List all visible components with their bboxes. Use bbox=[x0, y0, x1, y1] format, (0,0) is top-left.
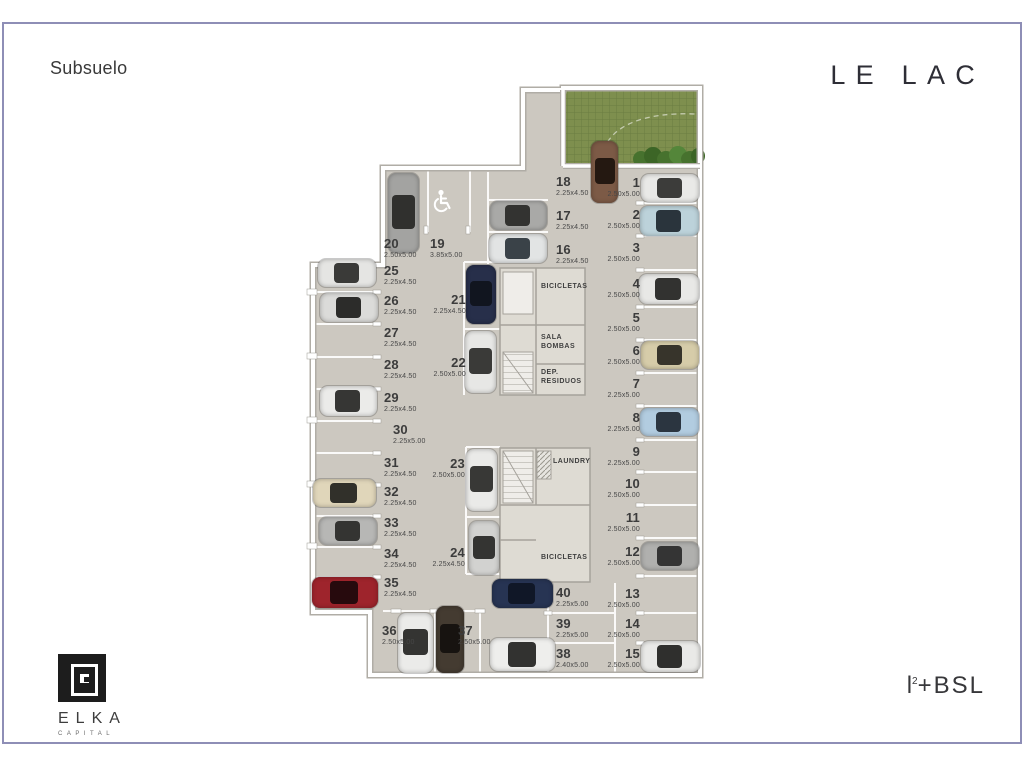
spot-number: 7 bbox=[607, 377, 640, 390]
parking-spot-label: 292.25x4.50 bbox=[384, 391, 417, 413]
car-glass bbox=[505, 205, 530, 226]
spot-dimensions: 2.25x5.00 bbox=[556, 601, 589, 608]
spot-number: 9 bbox=[607, 445, 640, 458]
car-glass bbox=[470, 466, 493, 493]
label-layer: BICICLETAS SALA BOMBAS DEP. RESIDUOS LAU… bbox=[0, 0, 1024, 768]
car-top-view bbox=[641, 641, 700, 672]
parking-spot-label: 132.50x5.00 bbox=[607, 587, 640, 609]
floor-title: Subsuelo bbox=[50, 58, 127, 79]
spot-dimensions: 2.25x4.50 bbox=[384, 373, 417, 380]
spot-number: 29 bbox=[384, 391, 417, 404]
parking-spot-label: 242.25x4.50 bbox=[432, 546, 465, 568]
parking-spot-label: 72.25x5.00 bbox=[607, 377, 640, 399]
spot-number: 22 bbox=[433, 356, 466, 369]
parking-spot-label: 272.25x4.50 bbox=[384, 326, 417, 348]
car-glass bbox=[392, 195, 415, 229]
parking-spot-label: 102.50x5.00 bbox=[607, 477, 640, 499]
car-glass bbox=[335, 390, 360, 412]
parking-spot-label: 392.25x5.00 bbox=[556, 617, 589, 639]
spot-dimensions: 2.25x5.00 bbox=[607, 460, 640, 467]
car-top-view bbox=[489, 234, 547, 263]
spot-dimensions: 2.25x4.50 bbox=[556, 224, 589, 231]
spot-number: 5 bbox=[607, 311, 640, 324]
parking-spot-label: 32.50x5.00 bbox=[607, 241, 640, 263]
developer-name: ELKA bbox=[58, 710, 127, 728]
car-top-view bbox=[640, 408, 699, 436]
car-glass bbox=[655, 278, 681, 300]
parking-spot-label: 112.50x5.00 bbox=[607, 511, 640, 533]
elka-logo-icon bbox=[58, 654, 106, 702]
spot-number: 10 bbox=[607, 477, 640, 490]
car-glass bbox=[470, 281, 492, 306]
spot-number: 39 bbox=[556, 617, 589, 630]
parking-spot-label: 332.25x4.50 bbox=[384, 516, 417, 538]
parking-spot-label: 372.50x5.00 bbox=[458, 624, 491, 646]
car-top-view bbox=[490, 201, 547, 230]
spot-number: 4 bbox=[607, 277, 640, 290]
parking-spot-label: 212.25x4.50 bbox=[433, 293, 466, 315]
parking-spot-label: 352.25x4.50 bbox=[384, 576, 417, 598]
parking-spot-label: 92.25x5.00 bbox=[607, 445, 640, 467]
parking-spot-label: 62.50x5.00 bbox=[607, 344, 640, 366]
spot-number: 24 bbox=[432, 546, 465, 559]
spot-number: 37 bbox=[458, 624, 491, 637]
parking-spot-label: 342.25x4.50 bbox=[384, 547, 417, 569]
spot-number: 23 bbox=[432, 457, 465, 470]
spot-number: 16 bbox=[556, 243, 589, 256]
spot-dimensions: 2.25x5.00 bbox=[393, 438, 426, 445]
car-top-view bbox=[320, 293, 378, 322]
car-top-view bbox=[641, 542, 699, 570]
spot-dimensions: 2.50x5.00 bbox=[607, 256, 640, 263]
spot-number: 11 bbox=[607, 511, 640, 524]
parking-spot-label: 12.50x5.00 bbox=[607, 176, 640, 198]
spot-dimensions: 2.50x5.00 bbox=[607, 326, 640, 333]
parking-spot-label: 22.50x5.00 bbox=[607, 208, 640, 230]
room-label-dep-residuos: DEP. RESIDUOS bbox=[541, 368, 582, 387]
car-top-view bbox=[313, 479, 376, 507]
car-top-view bbox=[492, 579, 553, 608]
floorplan-page: Subsuelo LE LAC bbox=[0, 0, 1024, 768]
spot-dimensions: 2.50x5.00 bbox=[607, 632, 640, 639]
handicap-icon bbox=[430, 189, 452, 218]
car-top-view bbox=[639, 274, 699, 304]
spot-dimensions: 2.50x5.00 bbox=[433, 371, 466, 378]
car-glass bbox=[657, 645, 682, 668]
spot-number: 33 bbox=[384, 516, 417, 529]
spot-dimensions: 2.25x5.00 bbox=[607, 426, 640, 433]
spot-number: 13 bbox=[607, 587, 640, 600]
spot-dimensions: 2.50x5.00 bbox=[458, 639, 491, 646]
spot-number: 27 bbox=[384, 326, 417, 339]
parking-spot-label: 232.50x5.00 bbox=[432, 457, 465, 479]
parking-spot-label: 172.25x4.50 bbox=[556, 209, 589, 231]
spot-number: 28 bbox=[384, 358, 417, 371]
developer-subtitle: CAPITAL bbox=[58, 731, 127, 737]
spot-number: 34 bbox=[384, 547, 417, 560]
project-brand-logo: LE LAC bbox=[830, 60, 985, 91]
parking-spot-label: 162.25x4.50 bbox=[556, 243, 589, 265]
spot-number: 12 bbox=[607, 545, 640, 558]
car-top-view bbox=[319, 517, 377, 545]
spot-number: 36 bbox=[382, 624, 415, 637]
car-top-view bbox=[641, 341, 699, 369]
car-top-view bbox=[320, 386, 377, 416]
spot-dimensions: 2.50x5.00 bbox=[607, 223, 640, 230]
spot-number: 31 bbox=[384, 456, 417, 469]
spot-number: 38 bbox=[556, 647, 589, 660]
spot-dimensions: 2.25x4.50 bbox=[384, 562, 417, 569]
spot-dimensions: 2.25x4.50 bbox=[384, 279, 417, 286]
spot-dimensions: 2.50x5.00 bbox=[382, 639, 415, 646]
parking-spot-label: 302.25x5.00 bbox=[393, 423, 426, 445]
car-glass bbox=[330, 581, 358, 604]
spot-dimensions: 2.25x5.00 bbox=[607, 392, 640, 399]
parking-spot-label: 262.25x4.50 bbox=[384, 294, 417, 316]
spot-dimensions: 2.50x5.00 bbox=[607, 560, 640, 567]
car-glass bbox=[334, 263, 359, 284]
spot-dimensions: 2.50x5.00 bbox=[384, 252, 417, 259]
spot-number: 1 bbox=[607, 176, 640, 189]
spot-number: 35 bbox=[384, 576, 417, 589]
spot-dimensions: 2.50x5.00 bbox=[607, 492, 640, 499]
room-label-bicicletas-bottom: BICICLETAS bbox=[541, 553, 587, 562]
car-glass bbox=[508, 642, 536, 666]
spot-number: 14 bbox=[607, 617, 640, 630]
spot-number: 6 bbox=[607, 344, 640, 357]
partner-logo-rest: +BSL bbox=[918, 672, 985, 699]
parking-spot-label: 312.25x4.50 bbox=[384, 456, 417, 478]
spot-dimensions: 2.50x5.00 bbox=[607, 359, 640, 366]
spot-number: 18 bbox=[556, 175, 589, 188]
spot-dimensions: 2.50x5.00 bbox=[607, 602, 640, 609]
spot-dimensions: 2.25x4.50 bbox=[556, 258, 589, 265]
car-top-view bbox=[312, 577, 378, 608]
car-top-view bbox=[318, 259, 376, 287]
parking-spot-label: 222.50x5.00 bbox=[433, 356, 466, 378]
spot-number: 19 bbox=[430, 237, 463, 250]
parking-spot-label: 52.50x5.00 bbox=[607, 311, 640, 333]
car-top-view bbox=[640, 206, 699, 236]
car-top-view bbox=[465, 331, 496, 393]
parking-spot-label: 182.25x4.50 bbox=[556, 175, 589, 197]
spot-dimensions: 2.25x4.50 bbox=[384, 531, 417, 538]
spot-dimensions: 2.50x5.00 bbox=[607, 292, 640, 299]
parking-spot-label: 382.40x5.00 bbox=[556, 647, 589, 669]
car-glass bbox=[330, 483, 357, 504]
spot-dimensions: 2.25x4.50 bbox=[384, 500, 417, 507]
car-glass bbox=[505, 238, 530, 259]
spot-number: 25 bbox=[384, 264, 417, 277]
room-label-bicicletas-top: BICICLETAS bbox=[541, 282, 587, 291]
spot-number: 15 bbox=[607, 647, 640, 660]
parking-spot-label: 82.25x5.00 bbox=[607, 411, 640, 433]
car-glass bbox=[657, 546, 682, 567]
car-glass bbox=[508, 583, 534, 604]
parking-spot-label: 152.50x5.00 bbox=[607, 647, 640, 669]
parking-spot-label: 362.50x5.00 bbox=[382, 624, 415, 646]
car-glass bbox=[657, 178, 682, 199]
spot-number: 30 bbox=[393, 423, 426, 436]
spot-number: 20 bbox=[384, 237, 417, 250]
spot-number: 40 bbox=[556, 586, 589, 599]
spot-dimensions: 2.25x4.50 bbox=[556, 190, 589, 197]
car-glass bbox=[473, 536, 495, 559]
parking-spot-label: 42.50x5.00 bbox=[607, 277, 640, 299]
car-glass bbox=[656, 412, 681, 433]
spot-dimensions: 2.50x5.00 bbox=[607, 191, 640, 198]
car-top-view bbox=[641, 174, 699, 202]
spot-dimensions: 2.25x4.50 bbox=[384, 471, 417, 478]
car-top-view bbox=[466, 265, 496, 324]
spot-number: 32 bbox=[384, 485, 417, 498]
parking-spot-label: 322.25x4.50 bbox=[384, 485, 417, 507]
spot-dimensions: 2.50x5.00 bbox=[432, 472, 465, 479]
parking-spot-label: 202.50x5.00 bbox=[384, 237, 417, 259]
spot-dimensions: 2.25x4.50 bbox=[384, 309, 417, 316]
parking-spot-label: 252.25x4.50 bbox=[384, 264, 417, 286]
parking-spot-label: 193.85x5.00 bbox=[430, 237, 463, 259]
car-glass bbox=[469, 348, 492, 375]
parking-spot-label: 122.50x5.00 bbox=[607, 545, 640, 567]
spot-number: 8 bbox=[607, 411, 640, 424]
spot-number: 21 bbox=[433, 293, 466, 306]
spot-dimensions: 2.25x4.50 bbox=[384, 591, 417, 598]
car-top-view bbox=[466, 449, 497, 511]
parking-spot-label: 402.25x5.00 bbox=[556, 586, 589, 608]
parking-spot-label: 142.50x5.00 bbox=[607, 617, 640, 639]
car-top-view bbox=[469, 521, 499, 575]
car-glass bbox=[336, 297, 361, 318]
car-glass bbox=[656, 210, 681, 232]
spot-dimensions: 2.25x5.00 bbox=[556, 632, 589, 639]
partner-logo: l2+BSL bbox=[907, 672, 985, 700]
spot-dimensions: 2.25x4.50 bbox=[384, 406, 417, 413]
spot-dimensions: 2.50x5.00 bbox=[607, 662, 640, 669]
parking-spot-label: 282.25x4.50 bbox=[384, 358, 417, 380]
spot-number: 3 bbox=[607, 241, 640, 254]
car-top-view bbox=[490, 638, 555, 671]
spot-number: 26 bbox=[384, 294, 417, 307]
car-glass bbox=[657, 345, 682, 366]
spot-dimensions: 3.85x5.00 bbox=[430, 252, 463, 259]
spot-dimensions: 2.25x4.50 bbox=[384, 341, 417, 348]
room-label-laundry: LAUNDRY bbox=[553, 457, 590, 466]
spot-dimensions: 2.25x4.50 bbox=[433, 308, 466, 315]
room-label-sala-bombas: SALA BOMBAS bbox=[541, 333, 575, 352]
spot-number: 17 bbox=[556, 209, 589, 222]
car-glass bbox=[335, 521, 360, 542]
spot-number: 2 bbox=[607, 208, 640, 221]
spot-dimensions: 2.40x5.00 bbox=[556, 662, 589, 669]
developer-logo-block: ELKA CAPITAL bbox=[58, 654, 127, 737]
spot-dimensions: 2.25x4.50 bbox=[432, 561, 465, 568]
spot-dimensions: 2.50x5.00 bbox=[607, 526, 640, 533]
